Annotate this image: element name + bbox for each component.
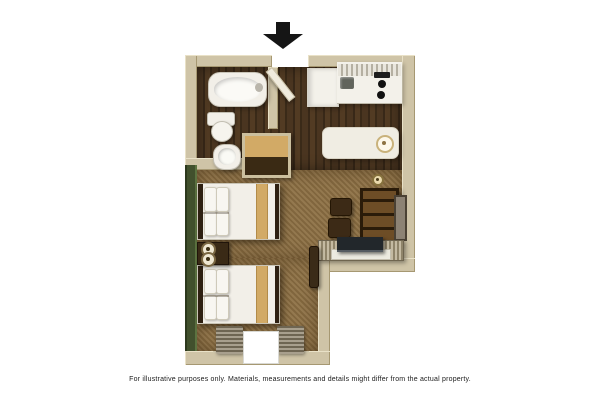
island-stool-center-dot [382,141,386,145]
entrance-arrow-head-icon [263,34,303,49]
ceiling-fixture-dot [376,178,379,181]
dining-chair-1 [330,198,352,216]
curtain-left [216,326,243,354]
pillow [216,211,229,236]
island-stool-icon [376,135,394,153]
wall-mid-vertical [318,258,330,365]
curtain-right [277,326,304,354]
vanity-shelf [245,157,288,175]
refrigerator [307,68,339,107]
pillow [216,269,229,294]
kitchen-counter [337,62,402,104]
dish-rack-icon [338,64,401,76]
stove-burner-icon [377,91,385,99]
pillow [216,295,229,320]
window [243,331,279,364]
wall-top-left [185,55,272,67]
green-accent-wall [185,165,197,351]
tv [337,237,383,252]
double-bed-2 [197,265,280,324]
bathtub-basin [214,77,261,102]
vanity-countertop [245,136,288,157]
pillow [216,187,229,212]
disclaimer-text: For illustrative purposes only. Material… [0,376,600,383]
kitchen-sink [340,77,354,89]
double-bed-1 [197,183,280,240]
bed-footboard [275,184,279,239]
stove-control-panel [374,72,390,78]
luggage-rack [309,246,319,288]
dining-chair-2 [328,218,351,238]
pedestal-sink [213,144,241,170]
lamp-center-dot [206,247,210,251]
floor-plan [185,55,415,365]
bed-accent-stripe [256,184,268,239]
nightstand [197,242,229,265]
bed-crease [203,295,229,297]
bed-footboard [275,266,279,323]
floor-plan-page: { "figure": { "type": "studio-suite-floo… [0,0,600,420]
sink-bowl [218,148,236,165]
kitchen-island [322,127,399,159]
stove-burner-icon [378,80,386,88]
lamp-icon [201,252,216,267]
ceiling-fixture-icon [372,174,384,186]
lamp-center-dot [206,257,210,261]
vanity-cabinet [242,133,291,178]
bed-crease [203,212,229,214]
toilet-bowl [211,121,233,142]
bed-accent-stripe [256,266,268,323]
wall-mirror [394,195,407,241]
bathtub-faucet-icon [255,83,263,92]
